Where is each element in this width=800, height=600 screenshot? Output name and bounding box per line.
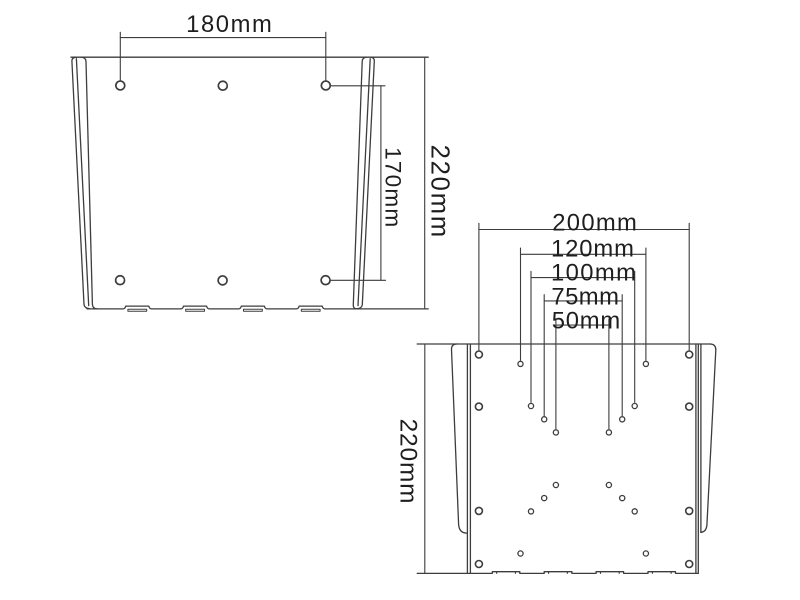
svg-text:220mm: 220mm bbox=[394, 419, 421, 505]
svg-text:75mm: 75mm bbox=[551, 283, 619, 310]
svg-text:180mm: 180mm bbox=[186, 11, 273, 38]
svg-text:200mm: 200mm bbox=[552, 210, 638, 237]
svg-text:170mm: 170mm bbox=[381, 147, 406, 228]
svg-text:120mm: 120mm bbox=[551, 235, 635, 262]
svg-text:220mm: 220mm bbox=[426, 145, 454, 239]
svg-text:50mm: 50mm bbox=[552, 308, 621, 335]
